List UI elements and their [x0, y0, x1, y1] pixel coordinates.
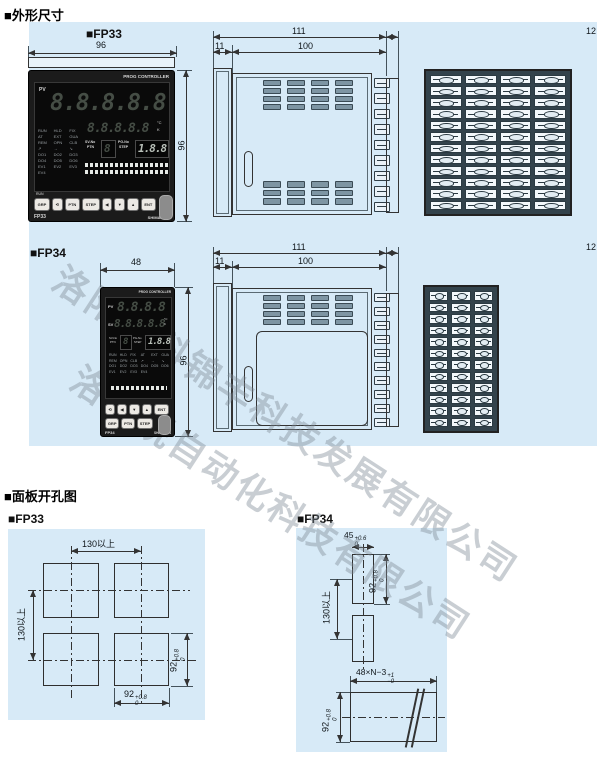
dim-fp34-width — [100, 270, 175, 271]
fp34-bargraph — [111, 386, 167, 390]
dim-label-fp34-width: 48 — [131, 258, 141, 267]
dim-label-fp33-depth-total: 111 — [292, 27, 306, 36]
fp33-sv-digits: 8.8.8.8.8 — [87, 122, 148, 135]
dim-label-fp33-cutout-hpitch: 130以上 — [82, 540, 115, 549]
fp34-status-labels: RUNHLDFIXATEXTGUAREMOPNCLB↗→↘DO1DO2DO3DO… — [109, 354, 169, 374]
fp33-rear-view — [424, 69, 572, 216]
fp34-side-terminal-cover — [386, 293, 399, 427]
fp33-side-vents-top — [263, 80, 353, 110]
dim-fp33-width — [28, 53, 177, 54]
fp34-unit-c: °C — [164, 318, 167, 321]
dim-fp34-strip-h — [340, 692, 341, 742]
fp33-ptn-label: PTN — [87, 146, 94, 150]
ext-line — [171, 686, 193, 687]
centerline — [141, 546, 142, 706]
ext-line — [398, 247, 399, 293]
dim-label-fp34-strip-h: 92+0.80 — [322, 701, 339, 741]
fp34-rear-view — [423, 285, 499, 433]
fp34-button-row-1: ⟲◀▼▲ENT — [105, 404, 169, 415]
fp34-pv-label: PV — [108, 305, 113, 309]
fp34-sv-label: SV — [108, 323, 113, 327]
fp33-status-labels: RUNHLDFIXATEXTGUAREMOPNCLB↗→↘DO1DO2DO3DO… — [38, 129, 82, 175]
dim-fp34-cutout-h — [386, 554, 387, 604]
fp34-step-label: STEP — [134, 341, 141, 344]
fp33-pv-digits: 8.8.8.8.8 — [50, 92, 166, 115]
fp34-connector-cover — [158, 415, 171, 435]
fp33-run-label: RUN — [36, 193, 44, 197]
ext-line — [336, 742, 350, 743]
dim-label-fp34-strip-w: 48×N−3+1−0 — [356, 668, 394, 685]
fp33-bargraph-1 — [85, 163, 169, 167]
label-fp34-cutout: ■FP34 — [297, 512, 333, 526]
section-title-panel-cutout: ■面板开孔图 — [4, 486, 77, 505]
dim-label-fp33-terminal-depth: 12 — [586, 27, 596, 36]
fp34-unit-k: K — [164, 323, 166, 326]
dim-fp33-cutout-vpitch — [33, 590, 34, 660]
fp33-ptn-digit: 8 — [104, 143, 110, 154]
dim-label-fp33-cutout-h: 92+0.80 — [170, 641, 187, 681]
centerline — [71, 546, 72, 700]
fp34-side-bezel — [213, 283, 232, 432]
dim-label-fp33-cutout-vpitch: 130以上 — [18, 601, 27, 649]
fp33-cutout-panel — [8, 529, 205, 720]
dim-label-fp34-terminal-depth: 12 — [586, 243, 596, 252]
fp34-step-digits: 1.8.8 — [148, 338, 170, 347]
dim-fp33-cutout-hpitch — [71, 551, 141, 552]
fp33-pv-label: PV — [39, 88, 46, 93]
fp33-display-area: PV 8.8.8.8.8 RUNHLDFIXATEXTGUAREMOPNCLB↗… — [34, 82, 170, 192]
dim-fp33-terminal-depth — [386, 37, 398, 38]
fp33-side-terminal-cover — [386, 78, 399, 213]
fp33-side-slot — [244, 151, 253, 187]
dim-label-fp33-depth-body: 100 — [298, 42, 313, 51]
dim-fp33-depth-total — [213, 37, 386, 38]
fp33-side-vents-bottom — [263, 181, 353, 205]
fp33-step-display: 1.8.8 — [135, 140, 169, 158]
fp33-bargraph-2 — [85, 170, 169, 174]
label-fp33-cutout: ■FP33 — [8, 512, 44, 526]
fp33-button-row: GRP⟲PTNSTEP◀▼▲ENT — [34, 198, 156, 211]
fp33-step-digits: 1.8.8 — [138, 143, 166, 154]
dim-fp33-bezel-depth — [213, 52, 232, 53]
dim-fp34-depth-total — [213, 253, 386, 254]
ext-line — [374, 604, 390, 605]
fp34-terminal-grid — [429, 291, 493, 427]
fp34-side-slot — [244, 366, 253, 402]
fp33-side-bezel — [213, 68, 232, 217]
fp33-brand-text: PROG CONTROLLER — [123, 75, 169, 80]
dim-fp34-terminal-depth — [386, 253, 398, 254]
fp34-side-vents — [263, 295, 353, 325]
dim-label-fp34-cutout-w: 45+0.60 — [344, 531, 366, 548]
centerline — [363, 544, 364, 670]
fp33-model-text: FP33 — [34, 215, 46, 220]
fp34-ptn-digit: 8 — [123, 338, 127, 347]
fp34-step-display: 1.8.8 — [145, 335, 171, 350]
dim-fp34-depth-body — [232, 267, 386, 268]
ext-line — [330, 639, 352, 640]
ext-line — [398, 31, 399, 78]
fp34-ptn-label: PTN — [110, 341, 116, 344]
fp34-button-row-2: GRPPTNSTEP — [105, 418, 153, 429]
fp34-front-view: PROG CONTROLLER PV 8.8.8.8 SV 8.8.8.8.8 … — [100, 287, 175, 437]
label-fp33: ■FP33 — [86, 27, 122, 41]
dim-label-fp34-cutout-vpitch: 130以上 — [323, 584, 332, 632]
dim-fp34-cutout-vpitch — [337, 579, 338, 639]
fp34-side-cover-panel — [256, 331, 368, 426]
fp33-svno-label: SV-No — [85, 141, 95, 145]
ext-line — [169, 688, 170, 707]
fp33-front-view: PROG CONTROLLER PV 8.8.8.8.8 RUNHLDFIXAT… — [28, 70, 175, 222]
centerline — [342, 717, 445, 718]
fp33-connector-cover — [159, 195, 173, 220]
fp34-brand-text: PROG CONTROLLER — [139, 291, 171, 294]
fp33-pgno-label: PG-No — [118, 141, 129, 145]
dim-label-fp34-bezel-depth: 11 — [215, 257, 224, 266]
dim-fp33-cutout-h — [187, 633, 188, 686]
centerline — [28, 590, 190, 591]
fp33-terminal-grid — [430, 75, 566, 210]
dim-label-fp33-bezel-depth: 11 — [215, 42, 224, 51]
dim-label-fp34-cutout-h: 92+0.80 — [369, 562, 386, 602]
fp34-ptn-display: 8 — [120, 335, 132, 350]
fp33-gasket-strip — [28, 57, 175, 68]
dim-label-fp34-depth-total: 111 — [292, 243, 306, 252]
fp34-sv-digits: 8.8.8.8.8 — [114, 318, 165, 329]
dim-label-fp34-depth-body: 100 — [298, 257, 313, 266]
fp33-unit-c: °C — [157, 121, 162, 125]
dim-fp33-depth-body — [232, 52, 386, 53]
section-title-outline-dimensions: ■外形尺寸 — [4, 5, 64, 24]
fp33-step-label: STEP — [119, 146, 128, 150]
catalog-page: ■外形尺寸 ■FP33 96 PROG CONTROLLER PV 8.8.8.… — [0, 0, 600, 759]
dim-label-fp33-width: 96 — [96, 41, 106, 50]
fp34-model-text: FP34 — [105, 431, 115, 435]
fp33-unit-k: K — [157, 128, 160, 132]
dim-label-fp34-height: 96 — [180, 351, 189, 371]
fp34-display-area: PV 8.8.8.8 SV 8.8.8.8.8 °C K SV-No PTN 8… — [105, 297, 172, 399]
dim-fp34-bezel-depth — [213, 267, 232, 268]
fp33-ptn-display: 8 — [101, 140, 116, 158]
fp34-pv-digits: 8.8.8.8 — [117, 301, 165, 314]
label-fp34: ■FP34 — [30, 246, 66, 260]
dim-label-fp33-height: 96 — [178, 136, 187, 156]
dim-label-fp33-cutout-w: 92+0.80 — [124, 690, 147, 707]
